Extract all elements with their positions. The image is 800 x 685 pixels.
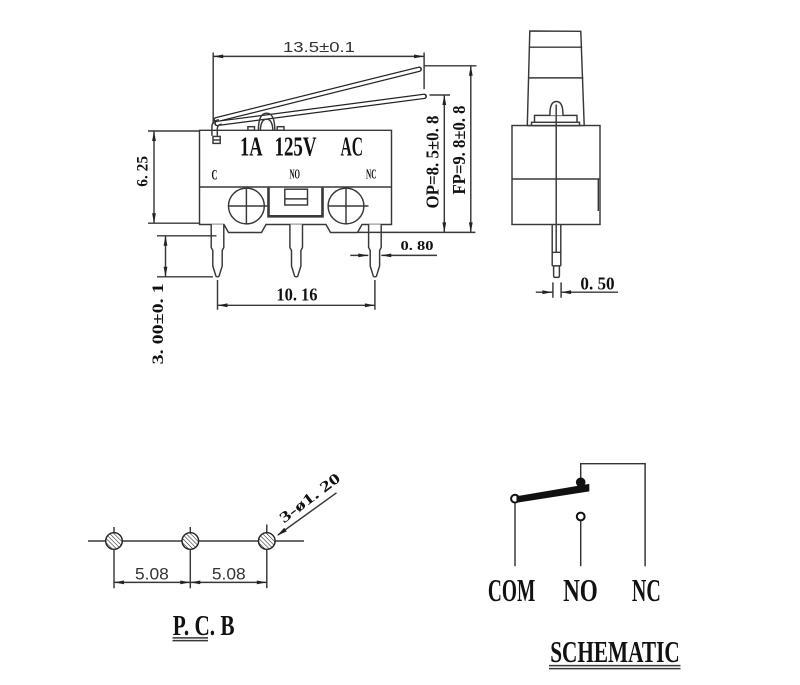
svg-text:AC: AC [341,132,364,162]
svg-text:C: C [212,168,218,184]
svg-text:0. 50: 0. 50 [580,274,614,294]
svg-text:0. 80: 0. 80 [401,239,434,254]
svg-text:5.08: 5.08 [212,566,246,584]
svg-text:6. 25: 6. 25 [135,156,152,187]
svg-text:3. 00±0. 1: 3. 00±0. 1 [150,283,167,364]
svg-text:5.08: 5.08 [135,566,169,584]
svg-text:SCHEMATIC: SCHEMATIC [550,634,680,669]
svg-text:NO: NO [290,168,301,183]
svg-text:3-ø1. 20: 3-ø1. 20 [277,471,344,527]
svg-text:NC: NC [366,168,377,183]
svg-text:NC: NC [632,572,661,608]
svg-text:1A: 1A [240,132,263,162]
svg-text:13.5±0.1: 13.5±0.1 [283,40,355,56]
svg-text:10. 16: 10. 16 [276,285,317,305]
svg-text:COM: COM [488,572,535,608]
svg-text:FP=9. 8±0. 8: FP=9. 8±0. 8 [449,105,469,194]
svg-text:OP=8. 5±0. 8: OP=8. 5±0. 8 [422,115,442,208]
svg-text:P. C. B: P. C. B [173,611,235,642]
svg-text:NO: NO [563,572,598,608]
svg-text:125V: 125V [275,132,317,162]
